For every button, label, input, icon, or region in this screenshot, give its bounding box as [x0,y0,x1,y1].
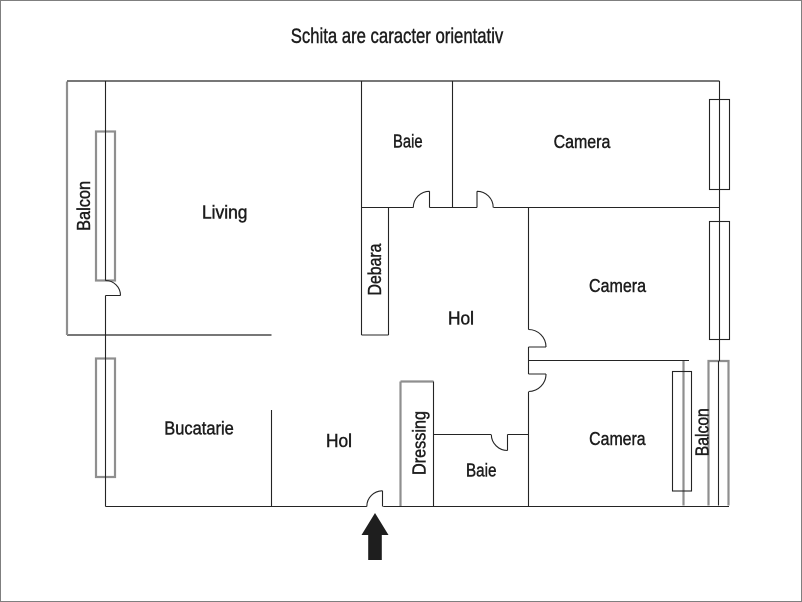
svg-text:Baie: Baie [393,131,423,152]
svg-text:Living: Living [202,202,248,223]
svg-text:Baie: Baie [466,460,497,481]
svg-text:Camera: Camera [554,131,611,152]
svg-text:Debara: Debara [364,243,385,296]
svg-text:Bucatarie: Bucatarie [164,418,234,439]
svg-text:Balcon: Balcon [73,181,94,231]
svg-text:Hol: Hol [326,430,352,451]
svg-text:Dressing: Dressing [409,411,430,475]
svg-text:Camera: Camera [589,275,647,296]
svg-text:Schita are caracter orientativ: Schita are caracter orientativ [291,24,504,48]
svg-text:Balcon: Balcon [692,408,713,456]
svg-text:Camera: Camera [589,428,646,449]
svg-text:Hol: Hol [448,308,474,329]
